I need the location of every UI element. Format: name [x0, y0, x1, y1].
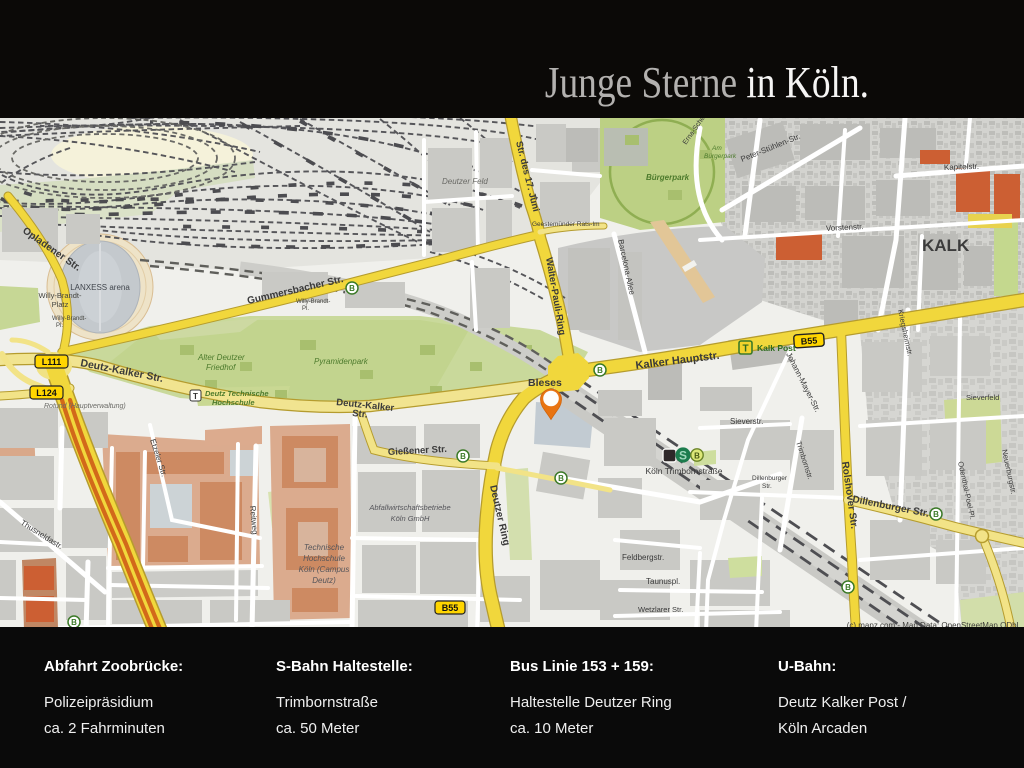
- svg-text:KALK: KALK: [922, 236, 970, 255]
- svg-text:Pl.: Pl.: [302, 306, 309, 312]
- svg-text:Willy-Brandt-: Willy-Brandt-: [52, 316, 86, 322]
- svg-text:B55: B55: [442, 603, 459, 613]
- svg-text:Bürgerpark: Bürgerpark: [646, 173, 690, 182]
- svg-text:B: B: [597, 366, 603, 375]
- svg-text:Geestemünder Rats-Im: Geestemünder Rats-Im: [532, 221, 600, 228]
- svg-text:Sieverfeld: Sieverfeld: [966, 393, 999, 402]
- svg-text:Abfallwirtschaftsbetriebe: Abfallwirtschaftsbetriebe: [368, 503, 450, 512]
- svg-text:LANXESS arena: LANXESS arena: [70, 283, 130, 292]
- svg-text:Str.: Str.: [762, 483, 772, 490]
- svg-text:Am: Am: [711, 145, 722, 152]
- svg-text:Str.: Str.: [352, 408, 368, 421]
- svg-text:T: T: [193, 392, 198, 401]
- svg-text:L124: L124: [36, 388, 57, 398]
- svg-text:B: B: [845, 583, 851, 592]
- svg-text:B: B: [933, 510, 939, 519]
- svg-text:Bleses: Bleses: [528, 377, 562, 389]
- svg-text:Friedhof: Friedhof: [206, 363, 236, 372]
- svg-text:Bürgerpark: Bürgerpark: [704, 153, 737, 160]
- svg-text:Rotund (Hauptverwaltung): Rotund (Hauptverwaltung): [44, 403, 126, 410]
- svg-text:Alter Deutzer: Alter Deutzer: [197, 353, 245, 362]
- svg-text:B55: B55: [800, 335, 817, 346]
- svg-text:Kapitelstr.: Kapitelstr.: [944, 162, 979, 172]
- svg-text:Dillenburger: Dillenburger: [752, 475, 788, 482]
- svg-text:T: T: [742, 344, 748, 355]
- svg-text:Taunuspl.: Taunuspl.: [646, 577, 680, 586]
- svg-text:Deutz Technische: Deutz Technische: [205, 389, 269, 398]
- svg-text:Köln GmbH: Köln GmbH: [391, 514, 430, 523]
- svg-text:B: B: [349, 284, 355, 293]
- svg-text:Platz: Platz: [52, 300, 69, 309]
- svg-text:S: S: [679, 449, 687, 463]
- svg-text:Deutzer Feld: Deutzer Feld: [442, 177, 488, 186]
- svg-text:Technische: Technische: [304, 543, 345, 552]
- svg-text:Willy-Brandt-: Willy-Brandt-: [39, 291, 82, 300]
- svg-text:Wetzlarer Str.: Wetzlarer Str.: [638, 605, 683, 614]
- svg-text:Deutz): Deutz): [312, 576, 336, 585]
- svg-text:B: B: [460, 452, 466, 461]
- svg-text:Pyramidenpark: Pyramidenpark: [314, 357, 369, 366]
- svg-text:Feldbergstr.: Feldbergstr.: [622, 553, 664, 562]
- svg-text:Köln (Campus: Köln (Campus: [299, 565, 350, 574]
- svg-text:B: B: [694, 452, 700, 461]
- svg-text:Hochschule: Hochschule: [303, 554, 345, 563]
- svg-text:Willy-Brandt-: Willy-Brandt-: [296, 299, 330, 305]
- svg-text:Pl.: Pl.: [56, 323, 63, 329]
- svg-text:B: B: [558, 474, 564, 483]
- svg-text:B: B: [71, 618, 77, 627]
- svg-text:Sieverstr.: Sieverstr.: [730, 417, 763, 426]
- svg-text:L111: L111: [42, 357, 62, 367]
- svg-text:Köln Trimbornstraße: Köln Trimbornstraße: [646, 466, 723, 476]
- svg-text:Hochschule: Hochschule: [212, 398, 255, 407]
